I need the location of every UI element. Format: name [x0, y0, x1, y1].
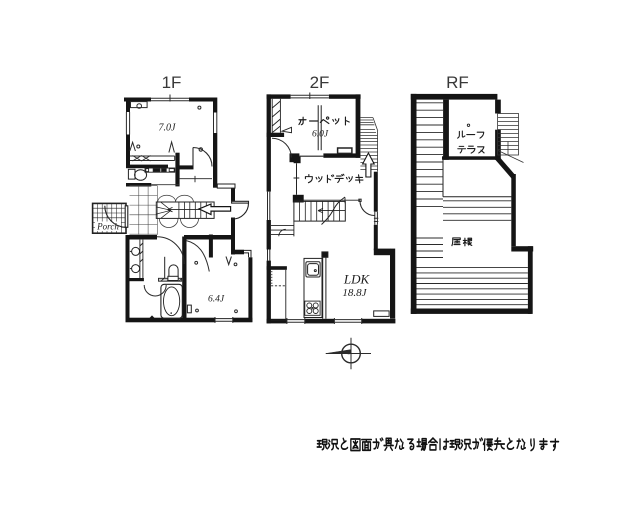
svg-text:6.0J: 6.0J [312, 130, 329, 140]
svg-text:RF: RF [446, 73, 469, 92]
svg-text:Porch: Porch [96, 222, 119, 232]
svg-text:1F: 1F [162, 73, 182, 92]
svg-text:18.8J: 18.8J [342, 287, 367, 299]
svg-text:7.0J: 7.0J [159, 123, 177, 134]
svg-text:LDK: LDK [343, 271, 371, 286]
svg-text:6.4J: 6.4J [208, 294, 225, 304]
svg-text:2F: 2F [310, 73, 330, 92]
